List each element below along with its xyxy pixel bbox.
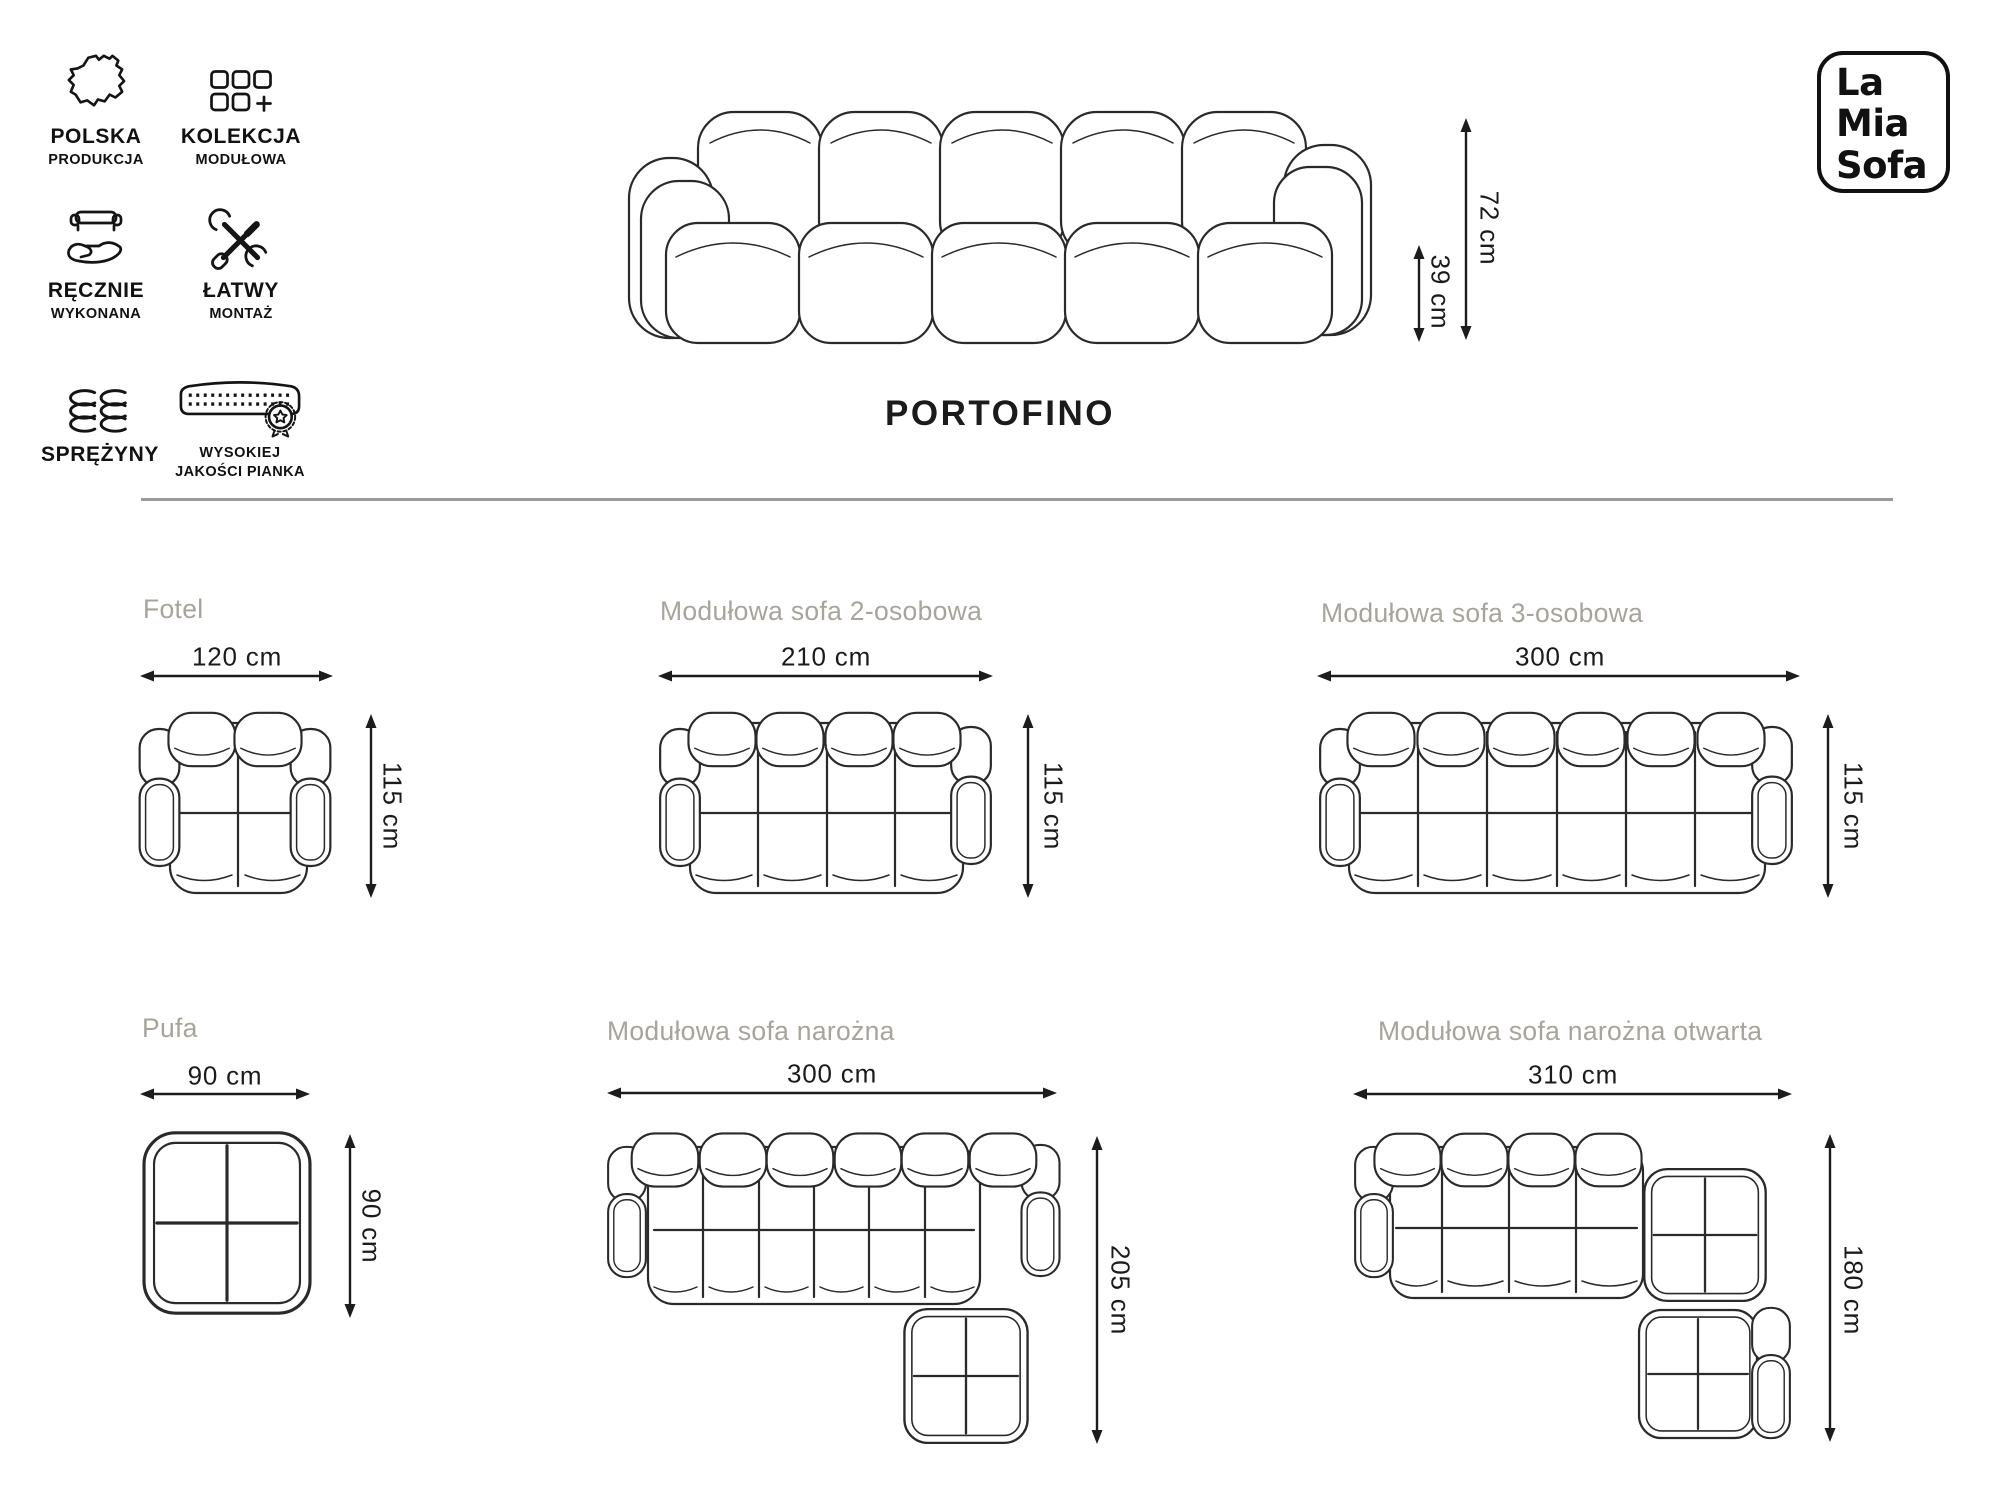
logo-line: Mia: [1836, 103, 1946, 144]
feature-sublabel: MODUŁOWA: [196, 152, 287, 168]
pufa-top-view-drawing: [140, 1130, 314, 1316]
seat-height-dimension-label: 39 cm: [1425, 255, 1456, 330]
feature-label: RĘCZNIE: [48, 279, 144, 303]
sofa3-top-view-drawing: [1317, 710, 1795, 902]
depth-dimension-label: 115 cm: [377, 762, 408, 850]
modular-collection-icon: [210, 42, 272, 118]
feature-label: SPRĘŻYNY: [41, 443, 159, 467]
springs-icon: [68, 372, 132, 436]
depth-dimension-arrow: [1020, 714, 1036, 898]
poland-map-icon: [64, 42, 128, 118]
feature-wysokiej-jakosci-pianka: WYSOKIEJ JAKOŚCI PIANKA: [164, 376, 316, 480]
product-title: PORTOFINO: [700, 394, 1300, 434]
depth-dimension-label: 205 cm: [1105, 1245, 1136, 1335]
variant-title-otwarta: Modułowa sofa narożna otwarta: [1378, 1016, 1762, 1047]
depth-dimension-arrow: [1089, 1136, 1105, 1444]
feature-sublabel: PRODUKCJA: [48, 152, 143, 168]
la-mia-sofa-logo: La Mia Sofa: [1817, 51, 1950, 193]
portofino-sofa-front-view-drawing: [625, 105, 1375, 345]
depth-dimension-label: 180 cm: [1838, 1245, 1869, 1335]
sofa2-top-view-drawing: [658, 710, 993, 902]
otwarta-top-view-drawing: [1353, 1130, 1801, 1446]
width-dimension-arrow: [140, 1086, 310, 1102]
logo-line: La: [1836, 62, 1946, 103]
high-quality-foam-icon: [175, 376, 305, 438]
feature-sublabel: JAKOŚCI PIANKA: [175, 464, 305, 480]
feature-sprezyny: SPRĘŻYNY: [26, 372, 174, 467]
feature-latwy-montaz: ŁATWY MONTAŻ: [170, 202, 312, 322]
total-height-dimension-arrow: [1458, 118, 1474, 340]
easy-assembly-icon: [210, 202, 272, 272]
section-divider: [141, 498, 1893, 501]
logo-line: Sofa: [1836, 145, 1946, 186]
variant-title-sofa2: Modułowa sofa 2-osobowa: [660, 596, 982, 627]
feature-sublabel: WYKONANA: [51, 306, 141, 322]
feature-polska-produkcja: POLSKA PRODUKCJA: [26, 42, 166, 168]
width-dimension-arrow: [140, 668, 333, 684]
width-dimension-arrow: [607, 1085, 1057, 1101]
feature-label: ŁATWY: [203, 279, 279, 303]
feature-label: POLSKA: [50, 125, 141, 149]
width-dimension-arrow: [1317, 668, 1800, 684]
variant-title-pufa: Pufa: [142, 1013, 198, 1044]
depth-dimension-label: 115 cm: [1838, 762, 1869, 850]
variant-title-sofa3: Modułowa sofa 3-osobowa: [1321, 598, 1643, 629]
variant-title-narozna: Modułowa sofa narożna: [607, 1016, 895, 1047]
depth-dimension-label: 90 cm: [356, 1189, 387, 1264]
feature-kolekcja-modulowa: KOLEKCJA MODUŁOWA: [170, 42, 312, 168]
width-dimension-arrow: [1353, 1086, 1792, 1102]
feature-label: WYSOKIEJ: [199, 445, 280, 461]
total-height-dimension-label: 72 cm: [1474, 191, 1505, 266]
variant-title-fotel: Fotel: [143, 594, 203, 625]
depth-dimension-arrow: [1822, 1134, 1838, 1442]
handmade-sofa-icon: [64, 202, 128, 272]
feature-label: KOLEKCJA: [181, 125, 301, 149]
feature-sublabel: MONTAŻ: [209, 306, 272, 322]
depth-dimension-label: 115 cm: [1038, 762, 1069, 850]
depth-dimension-arrow: [1820, 714, 1836, 898]
narozna-top-view-drawing: [605, 1130, 1063, 1446]
feature-recznie-wykonana: RĘCZNIE WYKONANA: [26, 202, 166, 322]
fotel-top-view-drawing: [137, 710, 333, 902]
width-dimension-arrow: [658, 668, 993, 684]
